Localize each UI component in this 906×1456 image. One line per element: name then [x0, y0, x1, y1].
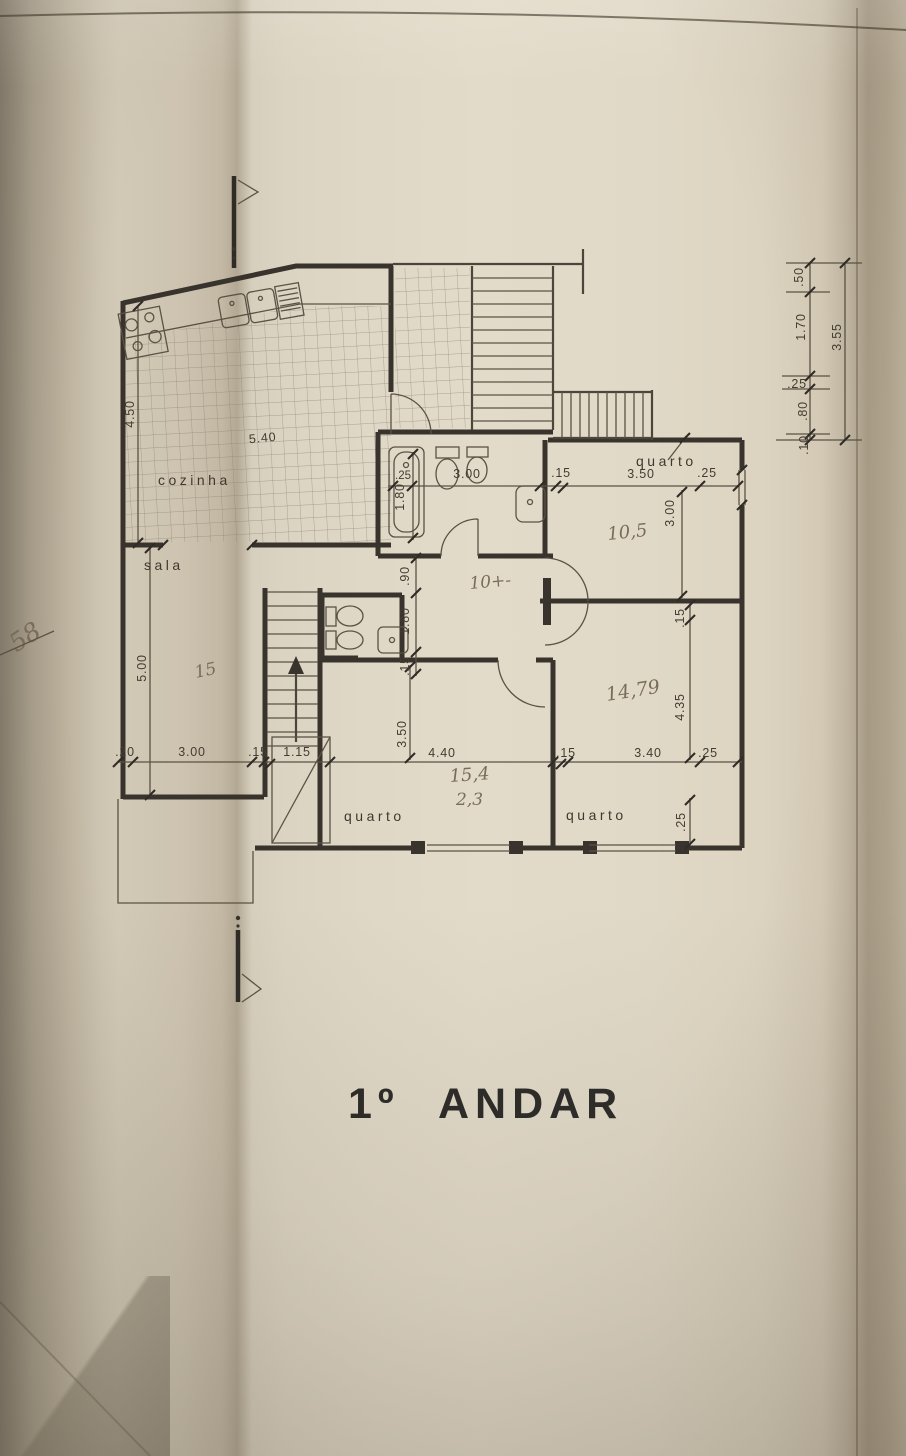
- dim-bottom-offset2: .25: [698, 746, 718, 760]
- handwritten-corner-note: 58: [0, 616, 54, 658]
- dim-bath-wall: .15: [551, 466, 571, 480]
- floor-title: 1º ANDAR: [348, 1080, 623, 1129]
- dim-br-height: 4.35: [673, 693, 687, 721]
- sheet-edges: [0, 8, 906, 1456]
- dim-bath-width: 3.00: [453, 467, 481, 481]
- dim-bottom-living: 3.00: [178, 745, 206, 759]
- dim-side-b: 1.70: [794, 313, 808, 341]
- dim-bottom-wall: .15: [248, 745, 268, 759]
- wc-bidet: [326, 631, 363, 649]
- scanned-floor-plan-sheet: cozinha sala quarto quarto quarto 4.50 5…: [0, 0, 906, 1456]
- dim-side-total: 3.55: [830, 323, 844, 351]
- dim-kitchen-width: 5.40: [248, 430, 277, 446]
- interior-stairs: [267, 592, 318, 746]
- dim-tr-offset: .25: [697, 466, 717, 480]
- handwritten-br-area: 14,79: [604, 676, 661, 706]
- dim-side-a: .50: [792, 267, 806, 287]
- handwritten-hall-area: 10+-: [469, 570, 512, 594]
- dim-kitchen-height: 4.50: [123, 400, 137, 428]
- dim-side-d: .80: [796, 401, 810, 421]
- room-label-bedroom-bottom-right: quarto: [566, 807, 627, 823]
- dim-bath-tub: 1.80: [393, 483, 407, 511]
- dim-wc-b: 1.80: [398, 607, 412, 635]
- balcony-railing: [553, 390, 652, 440]
- dim-bottom-stair: 1.15: [283, 745, 311, 759]
- wc-toilet: [326, 606, 363, 626]
- dim-wc-a: .90: [398, 566, 412, 586]
- handwritten-tr-area: 10,5: [606, 520, 648, 545]
- handwritten-center-area-b: 2,3: [455, 790, 483, 810]
- dim-bottom-center: 4.40: [428, 746, 456, 760]
- dim-wc-c: .15: [398, 656, 412, 676]
- section-marker-top: [232, 176, 258, 268]
- dim-bottom-right: 3.40: [634, 746, 662, 760]
- dim-bath-offset: .25: [395, 470, 411, 482]
- section-marker-bottom: [236, 916, 261, 1002]
- dim-bottom-offset: .20: [115, 745, 135, 759]
- dim-center-height: 3.50: [395, 720, 409, 748]
- dim-side-c: .25: [787, 377, 807, 391]
- stair-direction-arrow: [288, 656, 304, 674]
- dim-tr-height: 3.00: [663, 499, 677, 527]
- dim-tr-width: 3.50: [627, 467, 655, 481]
- lower-balcony: [118, 799, 253, 903]
- dim-bottom-wall2: .15: [556, 746, 576, 760]
- handwritten-center-area-a: 15,4: [449, 763, 490, 787]
- dim-br-sill: .25: [674, 812, 688, 832]
- dim-living-height: 5.00: [135, 654, 149, 682]
- dim-side-e: .10: [797, 435, 811, 455]
- dim-br-wall: .15: [673, 608, 687, 628]
- handwritten-living-area: 15: [193, 659, 218, 683]
- room-label-bedroom-center: quarto: [344, 808, 405, 824]
- floor-plan-drawing: cozinha sala quarto quarto quarto 4.50 5…: [0, 0, 906, 1456]
- room-label-kitchen: cozinha: [158, 472, 231, 488]
- washbasin: [516, 486, 545, 522]
- room-label-living: sala: [144, 557, 184, 573]
